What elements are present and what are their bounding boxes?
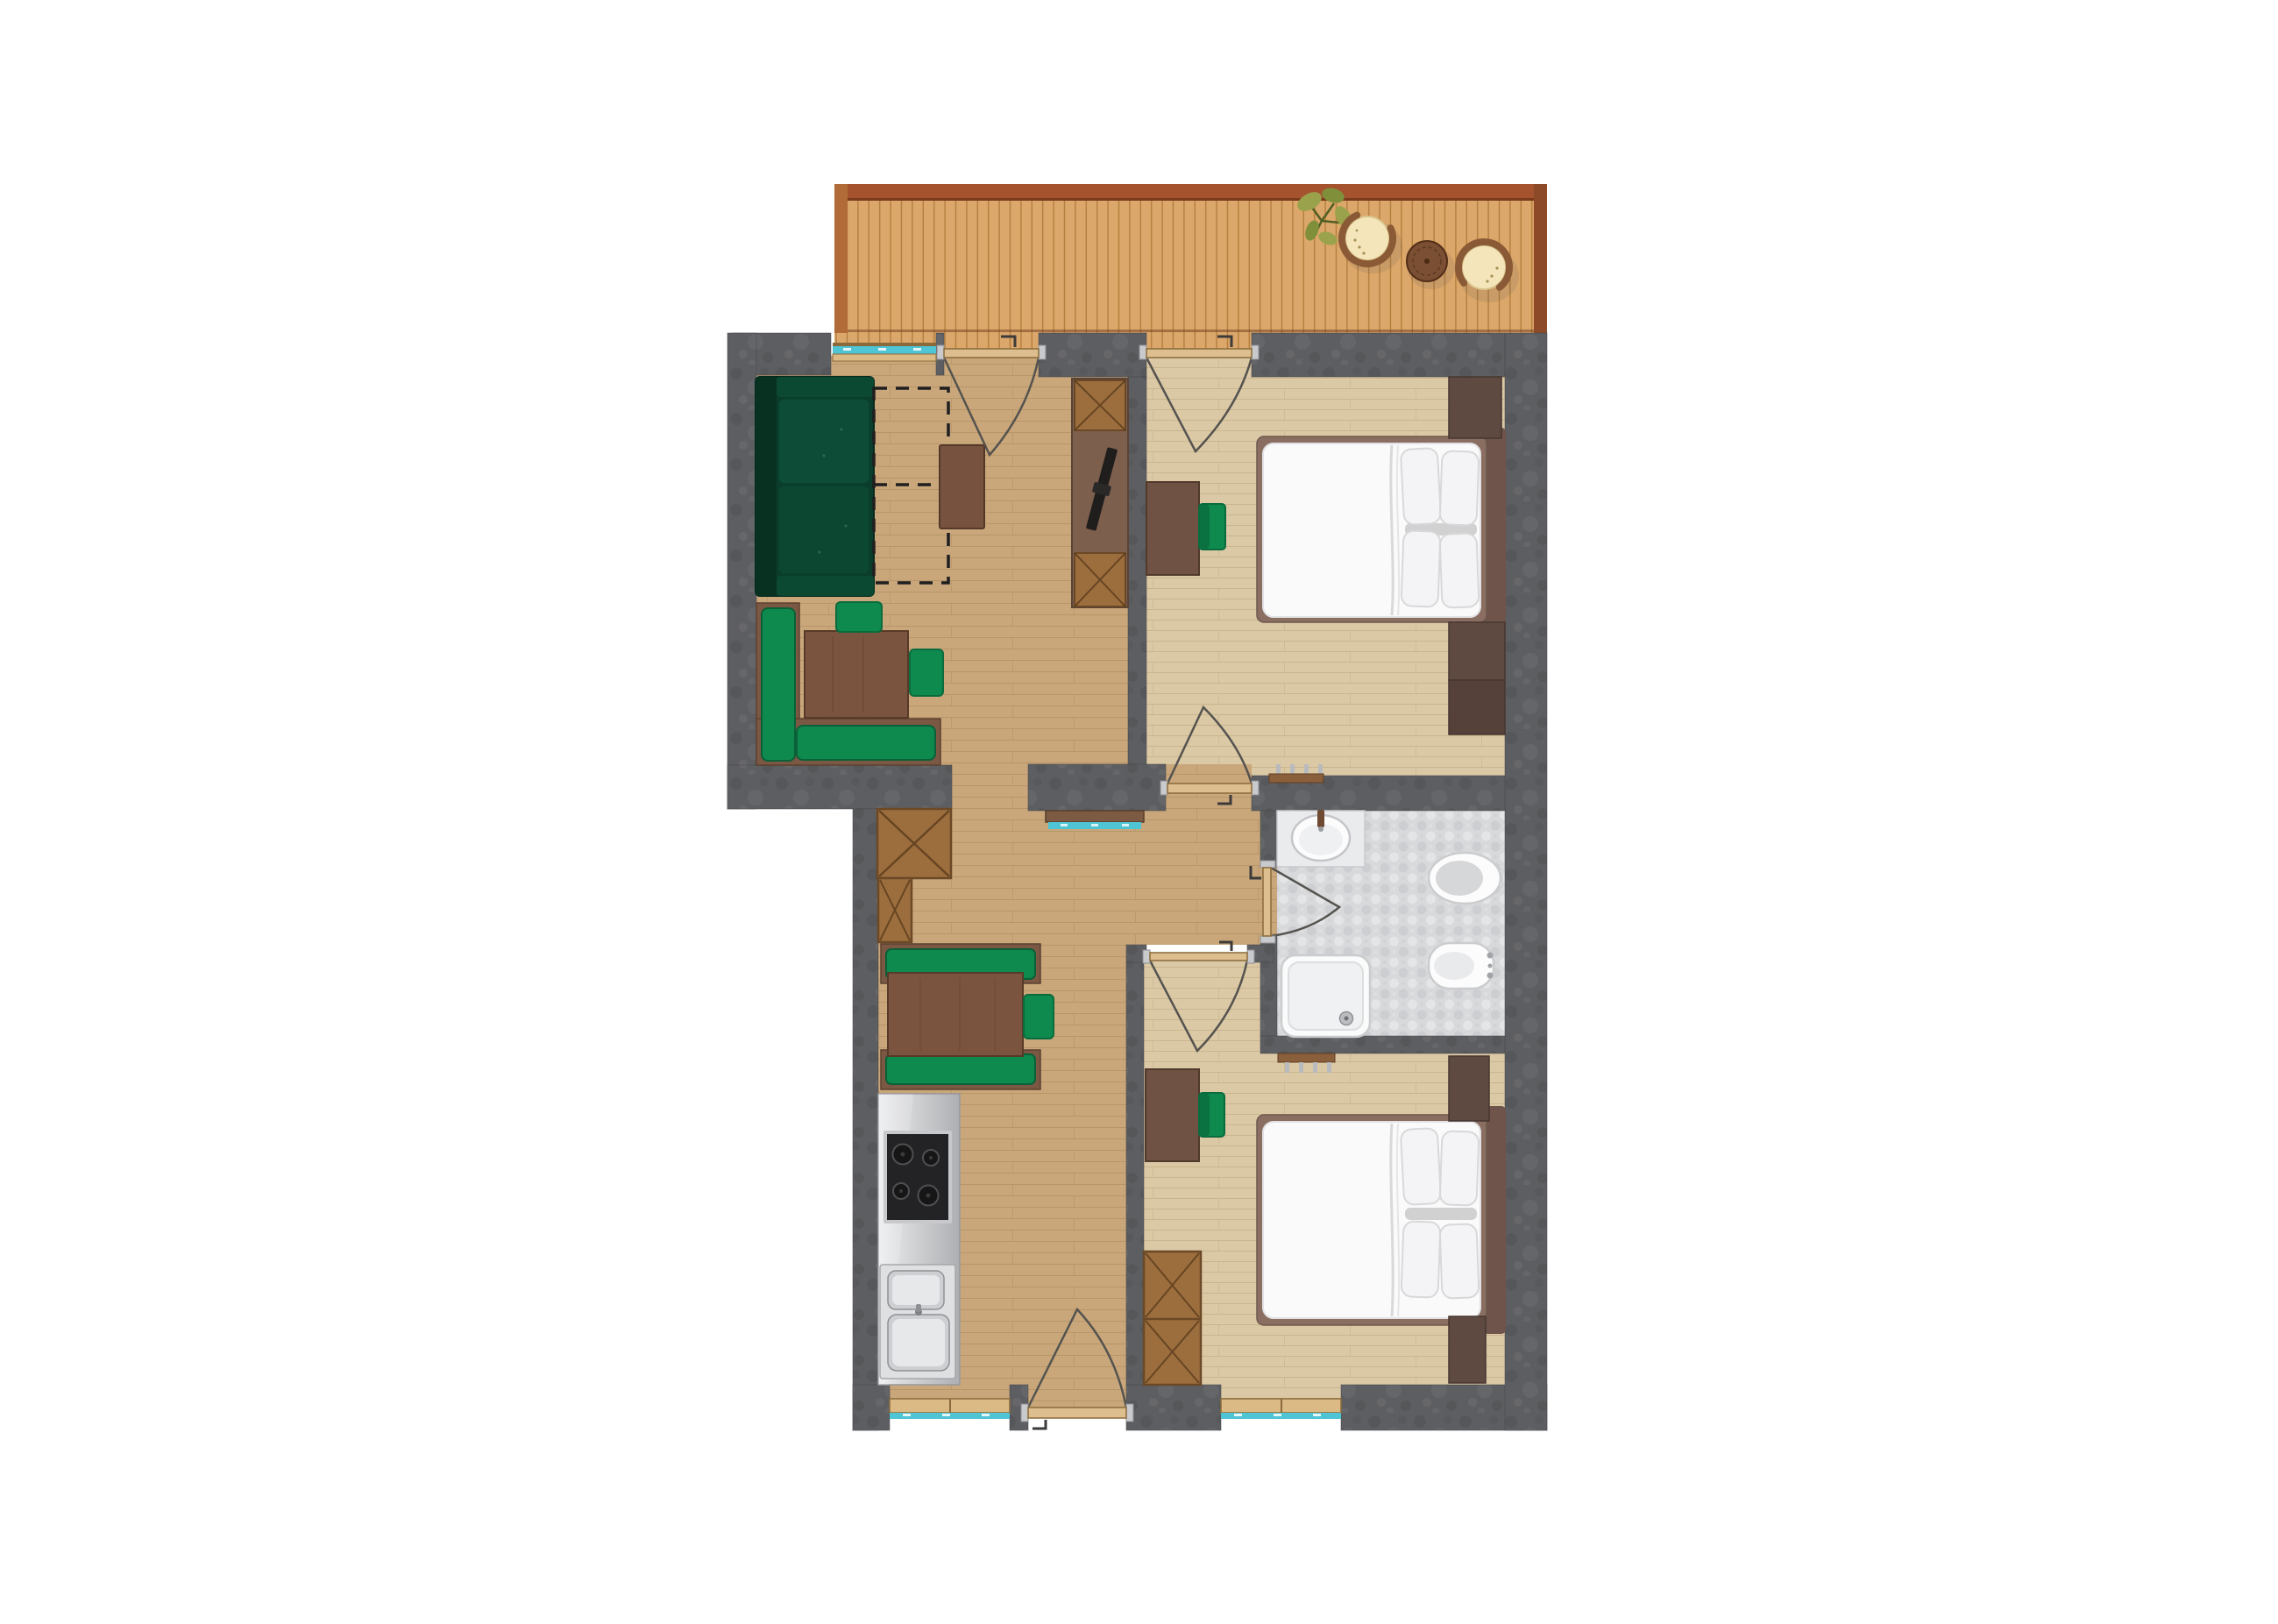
door-bathroom-part: [1260, 861, 1275, 868]
booth-table: [888, 973, 1023, 1056]
corner-sofa: [756, 377, 874, 596]
wall-living-bottom: [727, 765, 952, 809]
dining-chair-right: [910, 649, 943, 696]
radiator-bedroom-1-part: [1318, 764, 1323, 775]
floor-plan-page: [0, 0, 2278, 1624]
door-bedroom-1-part: [1160, 781, 1167, 795]
bed-bedroom-2-part: [1405, 1208, 1477, 1220]
booth-chair: [1024, 995, 1054, 1039]
kitchen-window-part: [982, 1414, 990, 1416]
pillow: [1401, 448, 1441, 525]
cooktop: [884, 1131, 952, 1223]
corner-sofa-part: [823, 455, 826, 457]
terrace-lounge-chair-1-part: [1362, 252, 1365, 254]
terrace-lounge-chair-2-part: [1490, 274, 1493, 277]
terrace-rail-right: [1534, 184, 1547, 333]
nightstand-bedroom-1-top: [1449, 377, 1501, 438]
vanity-sink: [1277, 810, 1365, 867]
bidet-part: [1487, 973, 1494, 979]
wall-bathroom-left-upper: [1260, 811, 1277, 868]
bedroom-2-window-part: [1274, 1414, 1281, 1416]
kitchen-window: [890, 1399, 1010, 1419]
corner-sofa-part: [777, 576, 874, 596]
balcony-door-bedroom-1-part: [1252, 345, 1259, 359]
terrace-lounge-chair-1-part: [1358, 245, 1360, 248]
shower-part: [1345, 1017, 1349, 1021]
entry-door-part: [1021, 1404, 1028, 1422]
radiator-bedroom-2-part: [1327, 1062, 1331, 1073]
radiator-bedroom-2-part: [1313, 1062, 1317, 1073]
coffee-table: [940, 445, 984, 528]
bidet-part: [1434, 952, 1474, 980]
bedroom-2-window: [1221, 1399, 1341, 1419]
desk-bedroom-1: [1146, 482, 1199, 575]
terrace-lounge-chair-2-part: [1462, 245, 1506, 289]
radiator-bedroom-1-part: [1304, 764, 1309, 775]
terrace-lounge-chair-1-part: [1356, 230, 1359, 232]
desk-chair-bedroom-2-part: [1200, 1094, 1210, 1136]
pillow: [1401, 1128, 1441, 1205]
desk-chair-bedroom-2: [1199, 1093, 1224, 1137]
wall-left: [727, 333, 756, 809]
terrace-lounge-chair-1-part: [1345, 216, 1389, 260]
toilet-part: [1436, 861, 1483, 896]
nightstand-bedroom-2-bottom: [1449, 1316, 1486, 1383]
vanity-sink-part: [1318, 826, 1324, 832]
radiator-bedroom-1-part: [1290, 764, 1295, 775]
bidet: [1429, 943, 1494, 989]
console-shelf-part: [1091, 824, 1098, 826]
bidet-part: [1487, 953, 1494, 959]
bed-bedroom-2: [1257, 1106, 1506, 1334]
corner-sofa-part: [777, 377, 874, 397]
recess-entry-door: [1028, 1385, 1126, 1409]
cooktop-part: [899, 1189, 903, 1193]
balcony-door-living-part: [937, 345, 944, 359]
bedroom-2-window-part: [1313, 1414, 1321, 1416]
cooktop-part: [901, 1152, 905, 1157]
wall-partition-bedroom-2: [1126, 962, 1144, 1385]
pillow: [1440, 533, 1480, 607]
tv-sideboard: [1072, 379, 1128, 607]
balcony-door-living-part: [944, 349, 1039, 358]
toilet: [1429, 853, 1502, 904]
radiator-bedroom-2-part: [1285, 1062, 1289, 1073]
pillow: [1402, 1221, 1441, 1297]
balcony-door-bedroom-1-part: [1146, 349, 1252, 358]
living-room-window-part: [833, 343, 936, 346]
terrace-lounge-chair-1-part: [1353, 238, 1356, 241]
terrace-lounge-chair-2-part: [1486, 280, 1488, 282]
wall-top-right: [1252, 333, 1505, 377]
dining-table: [805, 631, 908, 718]
radiator-bedroom-1-part: [1269, 774, 1324, 783]
dining-chair-top: [836, 602, 882, 632]
wall-top-block: [1039, 333, 1146, 377]
terrace-deck-edge: [834, 330, 1547, 332]
kitchen-sink-part: [916, 1304, 921, 1312]
bedroom-2-window-part: [1281, 1399, 1282, 1413]
dining-booth: [881, 944, 1054, 1089]
living-room-window-part: [878, 348, 886, 351]
wardrobe-bedroom-2: [1144, 1252, 1201, 1385]
pillow: [1440, 1223, 1480, 1298]
room-terrace: [834, 184, 1547, 349]
floor-plan: [0, 0, 2278, 1624]
door-bedroom-2-part: [1143, 950, 1150, 963]
wall-band-hall: [1028, 764, 1166, 811]
terrace-rail-left: [834, 184, 848, 333]
corner-sofa-part: [778, 399, 869, 484]
console-shelf-part: [1061, 824, 1068, 826]
desk-chair-bedroom-1-part: [1200, 505, 1210, 549]
door-bathroom-part: [1260, 936, 1275, 943]
bedroom-2-window-part: [1234, 1414, 1242, 1416]
living-room-window-part: [843, 348, 851, 351]
nightstand-bedroom-2-top: [1449, 1056, 1489, 1121]
wall-right: [1505, 333, 1547, 1430]
terrace-lounge-chair-2-part: [1495, 266, 1498, 269]
balcony-door-living-part: [1039, 345, 1046, 359]
cooktop-part: [929, 1156, 933, 1159]
corner-sofa-part: [819, 551, 821, 554]
kitchen-window-part: [942, 1414, 950, 1416]
wall-bathroom-bottom: [1260, 1036, 1505, 1053]
wall-bottom-1: [853, 1385, 890, 1430]
console-shelf-part: [1122, 824, 1129, 826]
wall-partition-bedroom-1: [1128, 377, 1146, 769]
living-room-window-part: [833, 354, 936, 361]
living-room-window: [833, 343, 936, 361]
door-bedroom-1-part: [1252, 781, 1259, 795]
vanity-faucet: [1317, 810, 1324, 827]
pillow: [1440, 1131, 1480, 1205]
dresser-bedroom-1: [1449, 680, 1505, 734]
door-bathroom-part: [1263, 868, 1271, 936]
bench-cushion-horizontal: [797, 726, 935, 760]
corner-sofa-part: [841, 429, 843, 431]
door-bedroom-2-part: [1150, 953, 1247, 961]
wall-bottom-3: [1126, 1385, 1221, 1430]
cooktop-part: [926, 1194, 931, 1198]
bed-bedroom-1: [1257, 428, 1506, 631]
living-room-window-part: [913, 348, 921, 351]
desk-bedroom-2: [1146, 1069, 1199, 1161]
entry-door-part: [1126, 1404, 1133, 1422]
kitchen-sink-part: [892, 1319, 945, 1366]
bench-cushion-vertical: [762, 608, 795, 761]
desk-chair-bedroom-1: [1199, 504, 1225, 550]
kitchen-sink: [880, 1265, 955, 1379]
pillow: [1402, 530, 1441, 606]
radiator-bedroom-2-part: [1299, 1062, 1303, 1073]
corner-sofa-part: [778, 486, 869, 574]
shower: [1281, 955, 1370, 1037]
pillow: [1440, 450, 1480, 525]
terrace-side-table-part: [1424, 259, 1430, 264]
terrace-rail-top-line: [834, 198, 1547, 201]
corner-sofa-part: [756, 377, 777, 596]
door-bedroom-1-part: [1167, 784, 1252, 793]
kitchen-window-part: [949, 1399, 951, 1413]
nightstand-bedroom-1-bottom: [1449, 622, 1505, 680]
bidet-part: [1488, 964, 1493, 968]
wall-kitchen-left: [853, 809, 878, 1430]
balcony-door-bedroom-1-part: [1139, 345, 1146, 359]
corner-sofa-part: [845, 525, 848, 528]
console-shelf: [1046, 811, 1144, 829]
kitchen-window-part: [903, 1414, 911, 1416]
entry-door-part: [1028, 1408, 1126, 1418]
kitchen-sink-part: [892, 1275, 940, 1305]
radiator-bedroom-2-part: [1278, 1053, 1335, 1062]
radiator-bedroom-1-part: [1276, 764, 1281, 775]
dining-booth-part: [886, 1054, 1035, 1084]
console-shelf-part: [1046, 811, 1144, 822]
door-bedroom-2-part: [1247, 950, 1254, 963]
